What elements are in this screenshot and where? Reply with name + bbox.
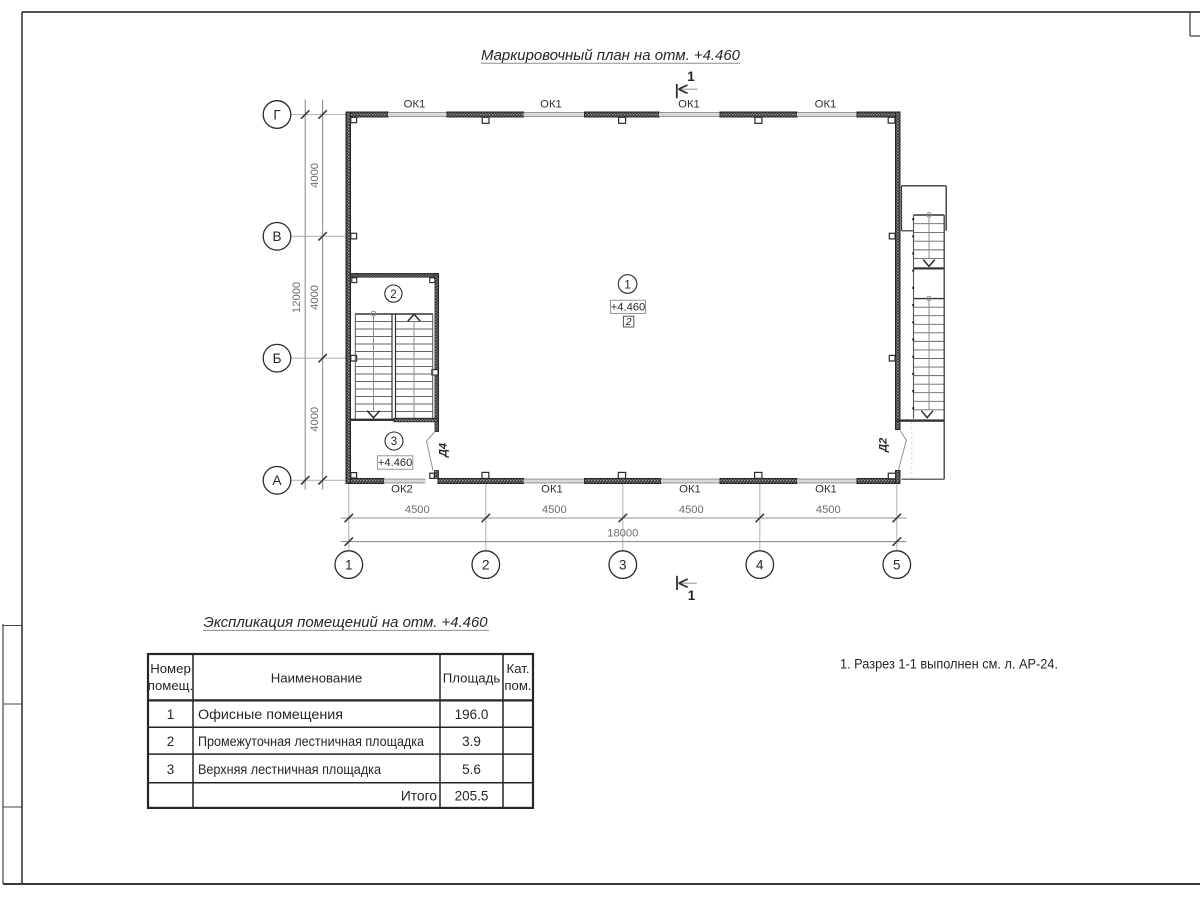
svg-text:+4.460: +4.460	[611, 301, 646, 313]
svg-text:196.0: 196.0	[455, 707, 489, 722]
svg-text:3: 3	[619, 557, 627, 572]
svg-text:4500: 4500	[542, 504, 567, 516]
svg-text:Б: Б	[273, 351, 282, 366]
svg-text:Маркировочный план на отм. +4: Маркировочный план на отм. +4.460	[481, 47, 741, 64]
svg-text:Площадь: Площадь	[443, 671, 501, 686]
svg-text:2: 2	[482, 557, 490, 572]
svg-text:ОК1: ОК1	[678, 99, 700, 111]
svg-text:ОК1: ОК1	[541, 484, 563, 496]
svg-text:4000: 4000	[309, 407, 321, 432]
svg-text:Промежуточная лестничная площа: Промежуточная лестничная площадка	[198, 734, 424, 749]
svg-text:Д2: Д2	[878, 438, 890, 453]
svg-text:1: 1	[167, 707, 175, 722]
svg-text:5.6: 5.6	[462, 762, 481, 777]
svg-text:Экспликация помещений на отм.: Экспликация помещений на отм. +4.460	[204, 614, 489, 631]
svg-text:205.5: 205.5	[455, 789, 489, 804]
svg-text:4000: 4000	[309, 285, 321, 310]
svg-text:В: В	[272, 229, 281, 244]
svg-text:ОК1: ОК1	[404, 99, 426, 111]
svg-text:помещ.: помещ.	[148, 678, 193, 693]
svg-text:4: 4	[756, 557, 764, 572]
svg-text:ОК1: ОК1	[815, 99, 837, 111]
svg-text:ОК2: ОК2	[391, 484, 413, 496]
svg-text:Г: Г	[273, 107, 281, 122]
svg-text:Наименование: Наименование	[271, 671, 362, 686]
svg-text:Д4: Д4	[438, 443, 450, 458]
svg-text:Кат.: Кат.	[507, 661, 530, 676]
svg-text:1: 1	[624, 279, 630, 291]
svg-text:4500: 4500	[816, 504, 841, 516]
svg-text:Номер: Номер	[150, 661, 191, 676]
svg-text:1: 1	[688, 588, 696, 603]
svg-text:4500: 4500	[405, 504, 430, 516]
svg-text:4000: 4000	[309, 163, 321, 188]
svg-text:3: 3	[167, 762, 175, 777]
svg-text:1: 1	[687, 69, 695, 84]
svg-text:3.9: 3.9	[462, 734, 481, 749]
svg-text:ОК1: ОК1	[679, 484, 701, 496]
svg-text:4500: 4500	[679, 504, 704, 516]
svg-text:18000: 18000	[607, 528, 638, 540]
svg-text:ОК1: ОК1	[540, 99, 562, 111]
svg-text:пом.: пом.	[504, 678, 531, 693]
svg-text:+4.460: +4.460	[378, 457, 413, 469]
svg-text:1. Разрез 1-1 выполнен см. л.: 1. Разрез 1-1 выполнен см. л. АР-24.	[840, 657, 1058, 672]
svg-text:2: 2	[625, 317, 632, 328]
svg-text:А: А	[272, 473, 281, 488]
svg-text:Итого: Итого	[401, 789, 437, 804]
svg-text:12000: 12000	[291, 282, 303, 313]
svg-text:Верхняя лестничная площадка: Верхняя лестничная площадка	[198, 762, 381, 777]
svg-text:5: 5	[893, 557, 901, 572]
svg-text:2: 2	[390, 289, 396, 301]
svg-text:Офисные помещения: Офисные помещения	[198, 707, 343, 722]
svg-text:3: 3	[391, 436, 397, 448]
svg-text:ОК1: ОК1	[815, 484, 837, 496]
svg-text:2: 2	[167, 734, 175, 749]
svg-text:1: 1	[345, 557, 353, 572]
